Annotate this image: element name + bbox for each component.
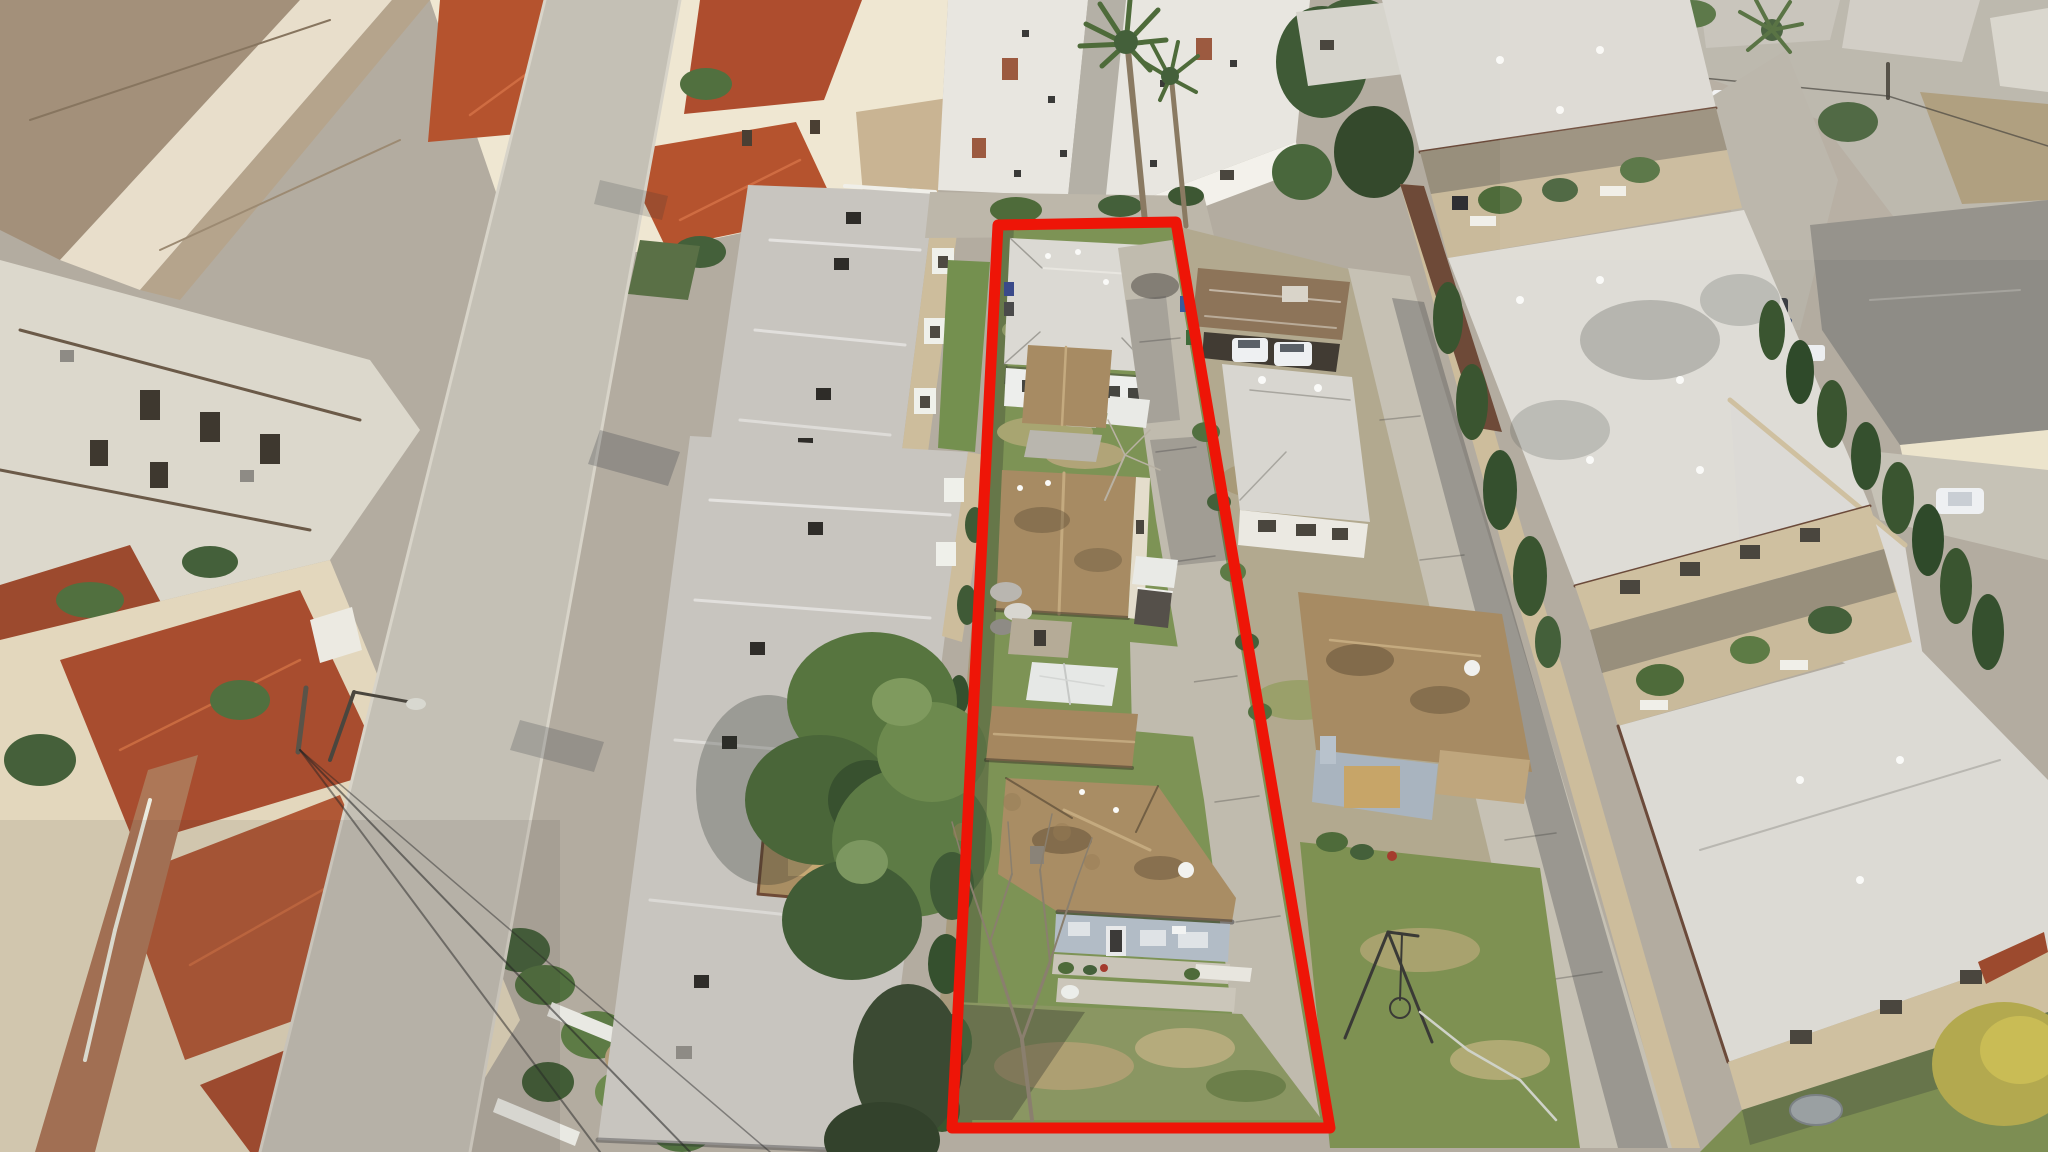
condo-window-well bbox=[140, 390, 160, 420]
window bbox=[1800, 528, 1820, 542]
roof-vent bbox=[1596, 276, 1604, 284]
middle-unit-b-roof bbox=[1022, 345, 1112, 428]
roof-vent bbox=[1314, 384, 1322, 392]
window bbox=[1178, 932, 1208, 948]
carport-patch bbox=[1282, 286, 1308, 302]
window bbox=[1332, 528, 1348, 540]
ac-unit bbox=[846, 212, 861, 224]
tree bbox=[210, 680, 270, 720]
cypress-tree bbox=[1786, 340, 1814, 404]
tree bbox=[680, 68, 732, 100]
cypress-tree bbox=[1456, 364, 1488, 440]
patio-interior bbox=[930, 326, 940, 338]
window bbox=[1258, 520, 1276, 532]
roof-vent bbox=[1676, 376, 1684, 384]
condo-window-well bbox=[150, 462, 168, 488]
bare-tree-leaves bbox=[1053, 823, 1071, 841]
patio-interior bbox=[938, 256, 948, 268]
corner-shade-overlay bbox=[0, 820, 560, 1152]
manhole-cover bbox=[1790, 1095, 1842, 1125]
bush bbox=[1083, 965, 1097, 975]
roof-vent bbox=[1230, 60, 1237, 67]
palm-crown bbox=[1161, 67, 1179, 85]
car-windshield bbox=[1280, 344, 1304, 352]
blue-bin bbox=[1004, 282, 1014, 296]
suv-sunroof bbox=[1948, 492, 1972, 506]
roof-vent bbox=[1017, 485, 1023, 491]
trash-bin bbox=[1452, 196, 1468, 210]
ac-unit bbox=[694, 975, 709, 988]
window bbox=[810, 120, 820, 134]
garage-apron bbox=[1130, 642, 1197, 737]
cypress-tree bbox=[1817, 380, 1847, 448]
roof-mottle bbox=[1134, 856, 1186, 880]
bare-tree-leaves bbox=[1084, 854, 1100, 870]
neighbor-lawn bbox=[1300, 842, 1580, 1148]
window bbox=[1220, 170, 1234, 180]
roof-vent bbox=[1696, 466, 1704, 474]
palm-shadow-on-roof bbox=[1580, 300, 1720, 380]
white-apartment-roof bbox=[938, 0, 1088, 196]
sunlight-overlay bbox=[1500, 0, 2048, 260]
hedge bbox=[628, 240, 700, 300]
balcony-rail bbox=[1640, 700, 1668, 710]
bush bbox=[1316, 832, 1348, 852]
pine-highlight bbox=[872, 678, 932, 726]
window bbox=[1960, 970, 1982, 984]
cypress-tree bbox=[1433, 282, 1463, 354]
back-fence-trees bbox=[1098, 195, 1142, 217]
roof-vent bbox=[1896, 756, 1904, 764]
bare-tree-leaves bbox=[1003, 793, 1021, 811]
roof-mottle bbox=[1326, 644, 1394, 676]
driveway-stain bbox=[1131, 273, 1179, 299]
roof-vent bbox=[1586, 456, 1594, 464]
window bbox=[1740, 545, 1760, 559]
junk-pile bbox=[990, 582, 1022, 602]
roof-vent bbox=[1516, 296, 1524, 304]
roof-vent bbox=[1022, 30, 1029, 37]
gray-addition-roof bbox=[1024, 430, 1102, 462]
bush bbox=[1058, 962, 1074, 974]
roof-vent bbox=[1113, 807, 1119, 813]
ac-unit bbox=[808, 522, 823, 535]
ac-unit bbox=[816, 388, 831, 400]
ac-unit bbox=[676, 1046, 692, 1059]
condo-window-well bbox=[260, 434, 280, 464]
roof-vent bbox=[1045, 253, 1051, 259]
bush bbox=[1350, 844, 1374, 860]
roof-vent bbox=[1856, 876, 1864, 884]
window bbox=[1136, 520, 1144, 534]
chimney bbox=[1320, 736, 1336, 764]
dry-grass-patch bbox=[1450, 1040, 1550, 1080]
window-ac-unit bbox=[1172, 926, 1186, 934]
window bbox=[1068, 922, 1090, 936]
patio-bush bbox=[1730, 636, 1770, 664]
pine-highlight bbox=[836, 840, 888, 884]
tree bbox=[4, 734, 76, 786]
palm-shadow-on-roof bbox=[1510, 400, 1610, 460]
white-chair bbox=[1061, 985, 1079, 999]
roof-vent bbox=[1048, 96, 1055, 103]
satellite-dish bbox=[1178, 862, 1194, 878]
roof-mottle bbox=[1014, 507, 1070, 533]
window bbox=[1296, 524, 1316, 536]
car-windshield bbox=[1238, 340, 1260, 348]
patio-bush bbox=[1636, 664, 1684, 696]
ac-unit bbox=[834, 258, 849, 270]
cypress-tree bbox=[1940, 548, 1972, 624]
cypress-tree bbox=[1483, 450, 1517, 530]
roof-vent bbox=[1014, 170, 1021, 177]
dry-grass-patch bbox=[1360, 928, 1480, 972]
window bbox=[1880, 1000, 1902, 1014]
brick-chimney bbox=[1002, 58, 1018, 80]
plywood-door bbox=[1344, 766, 1400, 808]
ac-unit bbox=[240, 470, 254, 482]
patio-enclosure bbox=[936, 542, 956, 566]
dry-grass-patch bbox=[1135, 1028, 1235, 1068]
junk-pile bbox=[1004, 603, 1032, 621]
gray-bin bbox=[1004, 302, 1014, 316]
roof-vent bbox=[1103, 279, 1109, 285]
cypress-tree bbox=[1535, 616, 1561, 668]
roof-vent bbox=[1079, 789, 1085, 795]
cypress-tree bbox=[1851, 422, 1881, 490]
condo-window-well bbox=[200, 412, 220, 442]
shed-door bbox=[1034, 630, 1046, 646]
entry-porch bbox=[1134, 588, 1172, 628]
window bbox=[1320, 40, 1334, 50]
satellite-dish bbox=[1464, 660, 1480, 676]
cypress-tree bbox=[1759, 300, 1785, 360]
hedge bbox=[182, 546, 238, 578]
condo-window-well bbox=[90, 440, 108, 466]
window bbox=[742, 130, 752, 146]
roof-vent bbox=[1150, 160, 1157, 167]
cypress-tree bbox=[1882, 462, 1914, 534]
patio-interior bbox=[920, 396, 930, 408]
door bbox=[1110, 930, 1122, 952]
cypress-tree bbox=[1912, 504, 1944, 576]
ac-unit bbox=[750, 642, 765, 655]
white-tarp-canopy bbox=[1026, 662, 1118, 706]
aerial-scene bbox=[0, 0, 2048, 1152]
roof-vent bbox=[1796, 776, 1804, 784]
ac-unit bbox=[60, 350, 74, 362]
window bbox=[1620, 580, 1640, 594]
roof-mottle bbox=[1410, 686, 1470, 714]
patio-bush bbox=[1808, 606, 1852, 634]
tree-mass bbox=[1272, 144, 1332, 200]
window bbox=[1790, 1030, 1812, 1044]
palm-crown bbox=[1114, 30, 1138, 54]
green-grass-patch bbox=[1206, 1070, 1286, 1102]
aerial-photo bbox=[0, 0, 2048, 1152]
roof-vent bbox=[1258, 376, 1266, 384]
red-flowers bbox=[1387, 851, 1397, 861]
roof-mottle bbox=[1074, 548, 1122, 572]
roof-vent bbox=[1060, 150, 1067, 157]
balcony-rail bbox=[1470, 216, 1496, 226]
unit-c-awning bbox=[1132, 556, 1178, 588]
cypress-tree bbox=[1972, 594, 2004, 670]
patio-enclosure bbox=[944, 478, 964, 502]
brick-chimney bbox=[972, 138, 986, 158]
cypress-tree bbox=[1513, 536, 1547, 616]
street-lamp-head bbox=[406, 698, 426, 710]
bush bbox=[1184, 968, 1200, 980]
roof-vent bbox=[1045, 480, 1051, 486]
red-flowers bbox=[1100, 964, 1108, 972]
balcony-rail bbox=[1780, 660, 1808, 670]
window bbox=[1140, 930, 1166, 946]
neighbor-house-roof bbox=[1222, 364, 1370, 522]
window bbox=[1680, 562, 1700, 576]
roof-vent bbox=[1075, 249, 1081, 255]
unit-b-awning bbox=[1106, 396, 1150, 428]
